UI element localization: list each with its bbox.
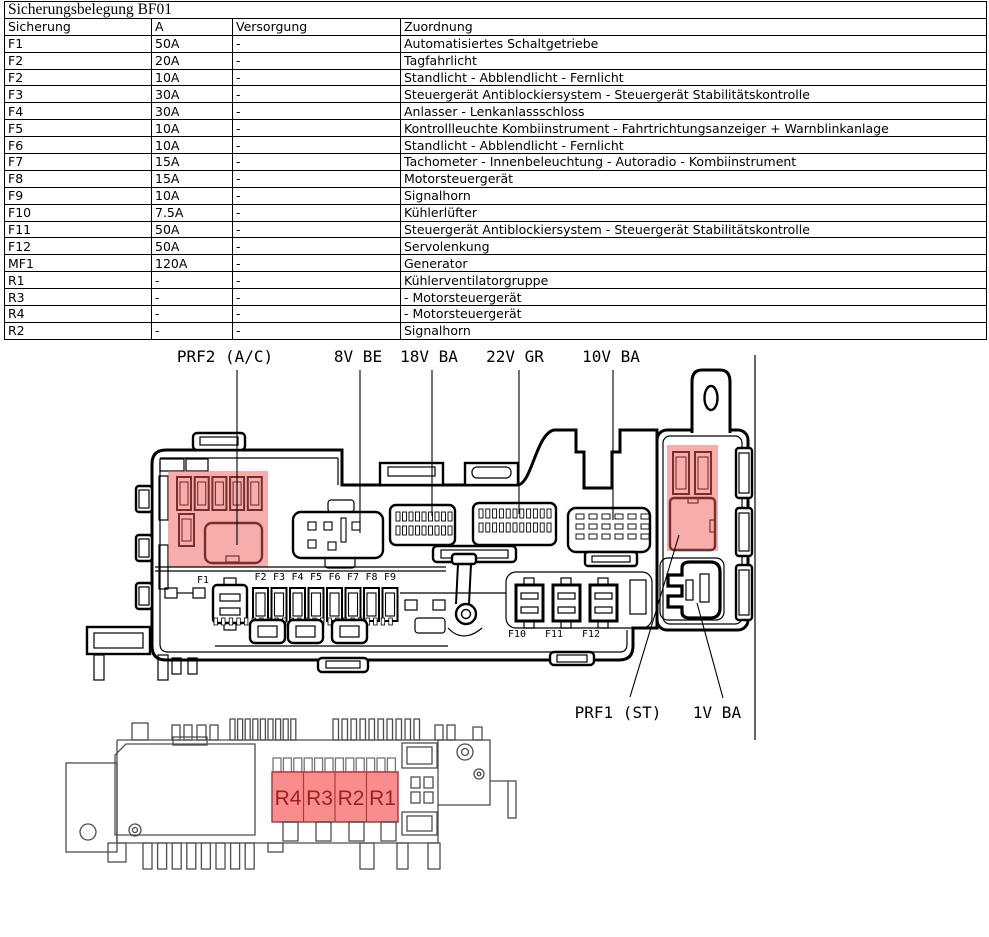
table-cell: Servolenkung <box>401 238 987 255</box>
table-row: F150A-Automatisiertes Schaltgetriebe <box>5 35 987 52</box>
connector-18v-ba <box>390 505 455 545</box>
table-cell: Standlicht - Abblendlicht - Fernlicht <box>401 69 987 86</box>
table-cell: 50A <box>152 221 233 238</box>
table-header-cell: Sicherung <box>5 18 152 35</box>
table-cell: F10 <box>5 204 152 221</box>
diagram-label: R4 <box>275 787 302 810</box>
table-cell: 15A <box>152 170 233 187</box>
table-row: F430A-Anlasser - Lenkanlassschloss <box>5 103 987 120</box>
labels-f10-f12: F10F11F12 <box>508 629 600 640</box>
relay-plate-diagram: R4R3R2R1 <box>66 719 516 869</box>
table-cell: - <box>233 221 401 238</box>
table-row: F330A-Steuergerät Antiblockiersystem - S… <box>5 86 987 103</box>
table-cell: - <box>233 238 401 255</box>
table-row: F815A-Motorsteuergerät <box>5 170 987 187</box>
table-cell: - Motorsteuergerät <box>401 306 987 323</box>
diagram-label: F7 <box>347 572 359 583</box>
table-cell: Motorsteuergerät <box>401 170 987 187</box>
diagram-label: F2 <box>254 572 266 583</box>
diagram-label: F11 <box>545 629 563 640</box>
table-cell: 10A <box>152 69 233 86</box>
table-row: F510A-Kontrollleuchte Kombiinstrument - … <box>5 120 987 137</box>
fuse-f12 <box>590 578 617 628</box>
table-row: R3--- Motorsteuergerät <box>5 289 987 306</box>
table-row: R4--- Motorsteuergerät <box>5 306 987 323</box>
diagram-label: F9 <box>384 572 396 583</box>
label-22v-gr: 22V GR <box>486 347 544 366</box>
prf1-section <box>657 370 752 630</box>
table-cell: Signalhorn <box>401 187 987 204</box>
table-cell: - <box>233 170 401 187</box>
table-header-cell: A <box>152 18 233 35</box>
table-cell: 50A <box>152 238 233 255</box>
right-mount-brackets <box>736 448 752 620</box>
table-cell: 7.5A <box>152 204 233 221</box>
table-cell: MF1 <box>5 255 152 272</box>
table-title-row: Sicherungsbelegung BF01 <box>5 2 987 19</box>
prf2-highlight <box>168 471 268 567</box>
table-cell: F2 <box>5 52 152 69</box>
table-row: F610A-Standlicht - Abblendlicht - Fernli… <box>5 137 987 154</box>
table-row: F1250A-Servolenkung <box>5 238 987 255</box>
table-cell: 15A <box>152 154 233 171</box>
table-cell: F4 <box>5 103 152 120</box>
fuse-f10 <box>516 578 543 628</box>
prf1-fuse-group <box>667 445 718 551</box>
table-header-cell: Versorgung <box>233 18 401 35</box>
diagram-label: F6 <box>328 572 340 583</box>
diagram-top-labels: PRF2 (A/C) 8V BE 18V BA 22V GR 10V BA <box>177 347 640 366</box>
table-cell: F5 <box>5 120 152 137</box>
label-prf1: PRF1 (ST) <box>575 703 662 722</box>
table-cell: - <box>233 187 401 204</box>
table-cell: 30A <box>152 103 233 120</box>
table-cell: Anlasser - Lenkanlassschloss <box>401 103 987 120</box>
label-1v-ba: 1V BA <box>693 703 742 722</box>
table-cell: F2 <box>5 69 152 86</box>
table-cell: - <box>233 272 401 289</box>
fuse-f11 <box>553 578 580 628</box>
table-cell: F7 <box>5 154 152 171</box>
table-cell: Automatisiertes Schaltgetriebe <box>401 35 987 52</box>
table-cell: - <box>233 204 401 221</box>
connector-22v-gr <box>473 503 556 545</box>
table-row: F210A-Standlicht - Abblendlicht - Fernli… <box>5 69 987 86</box>
table-cell: - <box>233 154 401 171</box>
table-header-cell: Zuordnung <box>401 18 987 35</box>
diagram-label: R3 <box>306 787 333 810</box>
table-cell: 10A <box>152 187 233 204</box>
table-title: Sicherungsbelegung BF01 <box>5 2 987 19</box>
table-row: R2--Signalhorn <box>5 322 987 339</box>
label-f1: F1 <box>197 575 209 586</box>
table-cell: 120A <box>152 255 233 272</box>
table-cell: - <box>233 289 401 306</box>
table-cell: Tagfahrlicht <box>401 52 987 69</box>
table-cell: 10A <box>152 137 233 154</box>
table-cell: F6 <box>5 137 152 154</box>
fuse-table: Sicherungsbelegung BF01 SicherungAVersor… <box>4 1 987 340</box>
relay-block: R4R3R2R1 <box>272 772 398 822</box>
table-cell: R1 <box>5 272 152 289</box>
table-cell: R2 <box>5 322 152 339</box>
table-cell: - <box>233 306 401 323</box>
table-cell: Steuergerät Antiblockiersystem - Steuerg… <box>401 221 987 238</box>
diagram-label: F4 <box>291 572 303 583</box>
diagram-bottom-labels: PRF1 (ST) 1V BA <box>575 703 742 722</box>
maxi-connectors <box>250 620 367 643</box>
table-cell: F11 <box>5 221 152 238</box>
table-cell: F1 <box>5 35 152 52</box>
fuse-documentation-page: Sicherungsbelegung BF01 SicherungAVersor… <box>0 0 989 937</box>
table-cell: - Motorsteuergerät <box>401 289 987 306</box>
diagram-label: F5 <box>310 572 322 583</box>
table-cell: R3 <box>5 289 152 306</box>
table-cell: Tachometer - Innenbeleuchtung - Autoradi… <box>401 154 987 171</box>
table-cell: - <box>233 137 401 154</box>
table-body: F150A-Automatisiertes SchaltgetriebeF220… <box>5 35 987 339</box>
diagram-label: F10 <box>508 629 526 640</box>
table-cell: F8 <box>5 170 152 187</box>
table-cell: - <box>233 255 401 272</box>
label-prf2: PRF2 (A/C) <box>177 347 273 366</box>
mount-hole <box>705 386 718 410</box>
prf1-highlight <box>667 445 718 551</box>
table-row: R1--Kühlerventilatorgruppe <box>5 272 987 289</box>
diagram-label: F12 <box>582 629 600 640</box>
label-8v-be: 8V BE <box>334 347 382 366</box>
diagram-label: F8 <box>365 572 377 583</box>
fuse-box-diagram: PRF2 (A/C) 8V BE 18V BA 22V GR 10V BA <box>0 340 989 937</box>
diagram-label: F3 <box>273 572 285 583</box>
table-row: F107.5A-Kühlerlüfter <box>5 204 987 221</box>
diagram-label: R1 <box>369 787 396 810</box>
table-row: F220A-Tagfahrlicht <box>5 52 987 69</box>
table-cell: - <box>233 52 401 69</box>
table-cell: - <box>152 322 233 339</box>
table-cell: - <box>152 289 233 306</box>
diagram-label: R2 <box>338 787 365 810</box>
table-cell: F12 <box>5 238 152 255</box>
table-cell: R4 <box>5 306 152 323</box>
table-cell: Kühlerlüfter <box>401 204 987 221</box>
table-cell: Standlicht - Abblendlicht - Fernlicht <box>401 137 987 154</box>
table-cell: Generator <box>401 255 987 272</box>
table-header-row: SicherungAVersorgungZuordnung <box>5 18 987 35</box>
table-cell: Steuergerät Antiblockiersystem - Steuerg… <box>401 86 987 103</box>
table-cell: - <box>233 322 401 339</box>
table-cell: - <box>233 103 401 120</box>
table-cell: F9 <box>5 187 152 204</box>
table-cell: - <box>233 35 401 52</box>
table-cell: 10A <box>152 120 233 137</box>
prf2-fuse-group <box>168 471 268 567</box>
table-cell: 30A <box>152 86 233 103</box>
table-cell: Kühlerventilatorgruppe <box>401 272 987 289</box>
table-cell: - <box>233 69 401 86</box>
label-18v-ba: 18V BA <box>400 347 458 366</box>
table-row: MF1120A-Generator <box>5 255 987 272</box>
left-mount-brackets <box>136 486 152 609</box>
table-row: F715A-Tachometer - Innenbeleuchtung - Au… <box>5 154 987 171</box>
table-cell: 20A <box>152 52 233 69</box>
table-cell: - <box>152 306 233 323</box>
table-cell: Kontrollleuchte Kombiinstrument - Fahrtr… <box>401 120 987 137</box>
table-cell: 50A <box>152 35 233 52</box>
table-cell: - <box>233 86 401 103</box>
label-10v-ba: 10V BA <box>582 347 640 366</box>
table-cell: Signalhorn <box>401 322 987 339</box>
table-row: F1150A-Steuergerät Antiblockiersystem - … <box>5 221 987 238</box>
table-cell: F3 <box>5 86 152 103</box>
table-cell: - <box>233 120 401 137</box>
table-cell: - <box>152 272 233 289</box>
table-row: F910A-Signalhorn <box>5 187 987 204</box>
